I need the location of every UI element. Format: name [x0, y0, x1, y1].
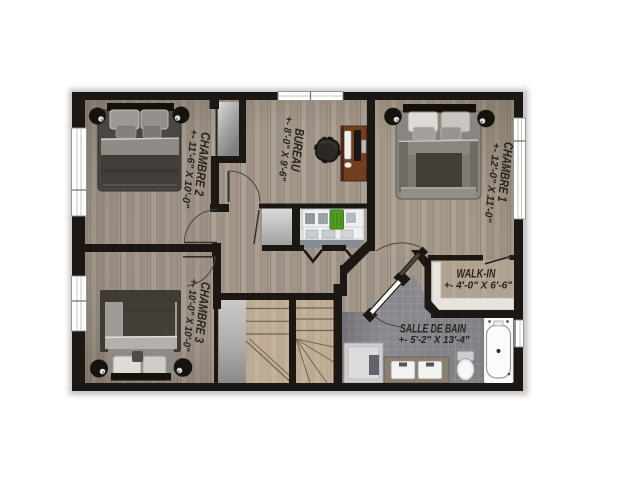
svg-text:+- 5'-2" X 13'-4": +- 5'-2" X 13'-4" [399, 334, 471, 346]
svg-text:WALK-IN: WALK-IN [457, 267, 496, 281]
svg-text:+- 4'-0" X 6'-6": +- 4'-0" X 6'-6" [444, 280, 513, 292]
